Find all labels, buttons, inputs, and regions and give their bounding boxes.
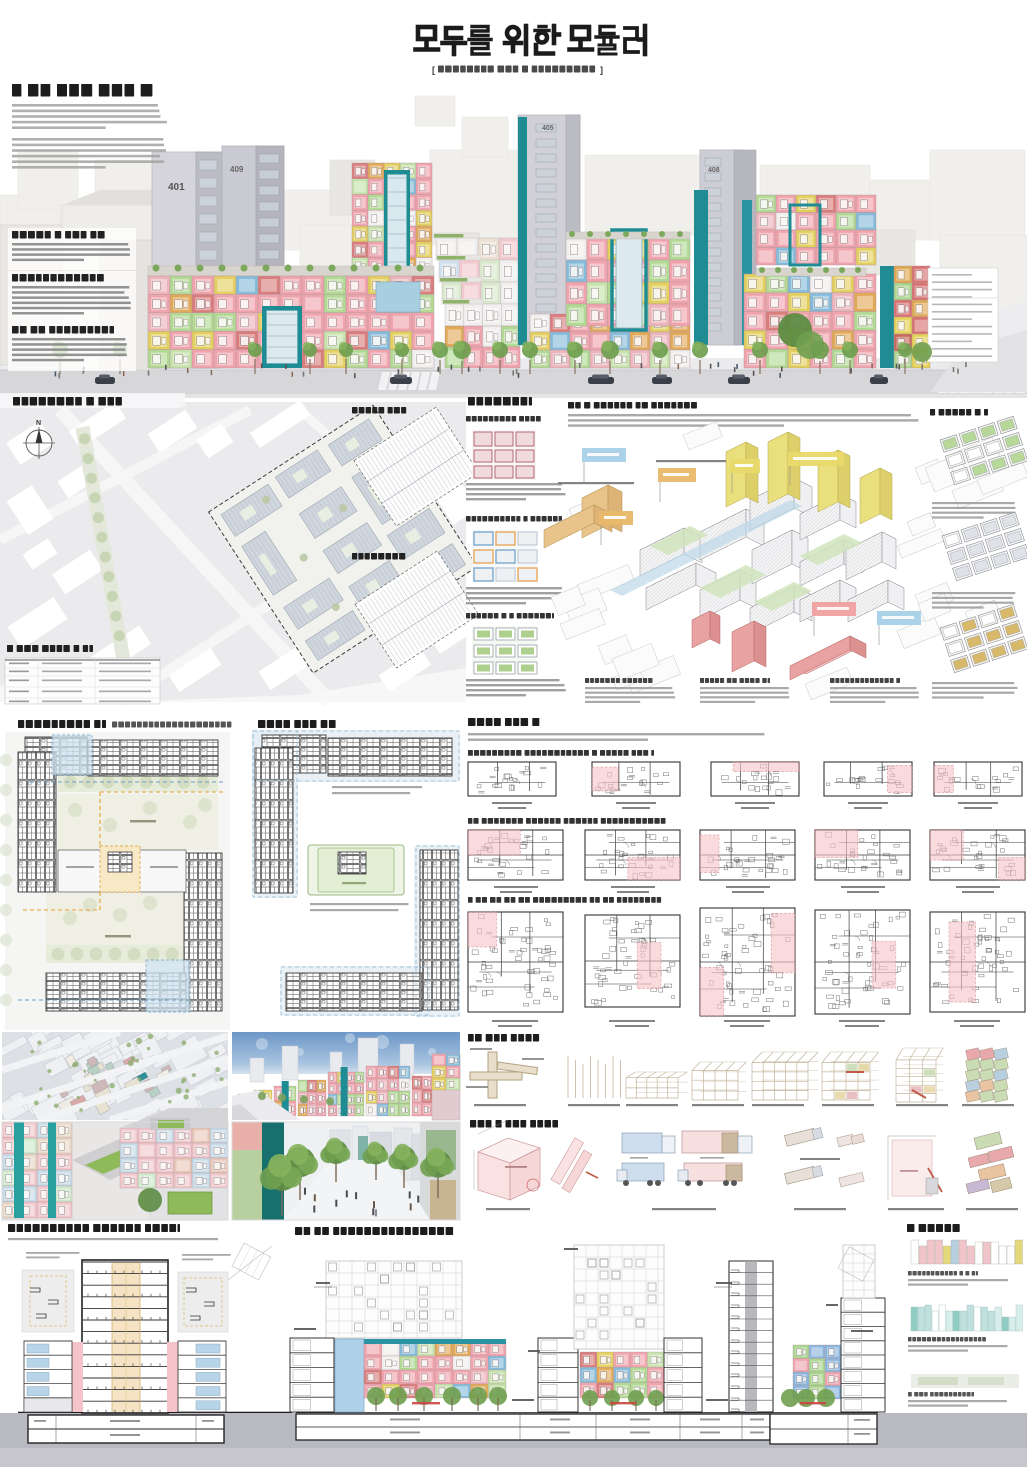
svg-text:405: 405 bbox=[542, 125, 554, 132]
svg-text:N: N bbox=[36, 420, 41, 427]
svg-text:409: 409 bbox=[230, 165, 244, 174]
svg-text:]: ] bbox=[600, 65, 603, 75]
svg-text:408: 408 bbox=[708, 167, 720, 174]
svg-text:[: [ bbox=[432, 65, 435, 75]
svg-text:401: 401 bbox=[168, 182, 185, 193]
